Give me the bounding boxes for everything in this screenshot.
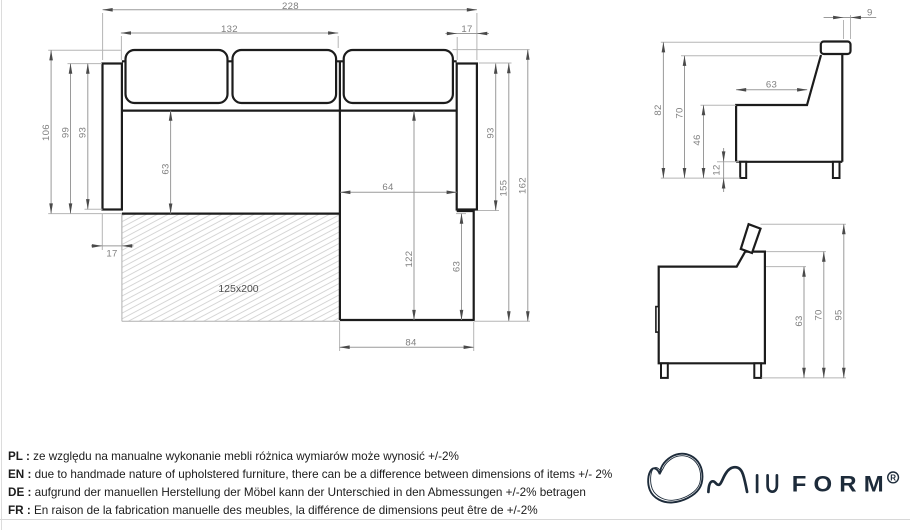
- svg-text:70: 70: [674, 107, 685, 118]
- svg-text:46: 46: [692, 134, 703, 145]
- svg-text:95: 95: [834, 309, 845, 320]
- svg-text:228: 228: [282, 1, 299, 12]
- svg-text:63: 63: [451, 261, 462, 272]
- svg-text:122: 122: [404, 251, 415, 268]
- svg-text:9: 9: [867, 7, 873, 18]
- svg-text:125x200: 125x200: [218, 283, 258, 295]
- svg-text:17: 17: [106, 249, 117, 260]
- svg-text:99: 99: [60, 127, 71, 138]
- svg-text:63: 63: [766, 79, 777, 90]
- svg-text:FORM: FORM: [792, 472, 891, 497]
- svg-text:63: 63: [160, 163, 171, 174]
- svg-text:R: R: [890, 474, 896, 483]
- svg-text:12: 12: [711, 164, 722, 175]
- svg-text:64: 64: [382, 182, 394, 193]
- svg-text:70: 70: [814, 309, 825, 320]
- svg-text:17: 17: [461, 24, 472, 35]
- svg-text:155: 155: [499, 180, 510, 197]
- svg-text:93: 93: [486, 127, 497, 138]
- svg-text:162: 162: [518, 177, 529, 194]
- svg-text:106: 106: [41, 124, 52, 141]
- svg-text:84: 84: [405, 338, 417, 349]
- svg-text:82: 82: [653, 104, 664, 115]
- svg-text:132: 132: [221, 24, 238, 35]
- svg-text:93: 93: [78, 127, 89, 138]
- svg-text:63: 63: [794, 315, 805, 326]
